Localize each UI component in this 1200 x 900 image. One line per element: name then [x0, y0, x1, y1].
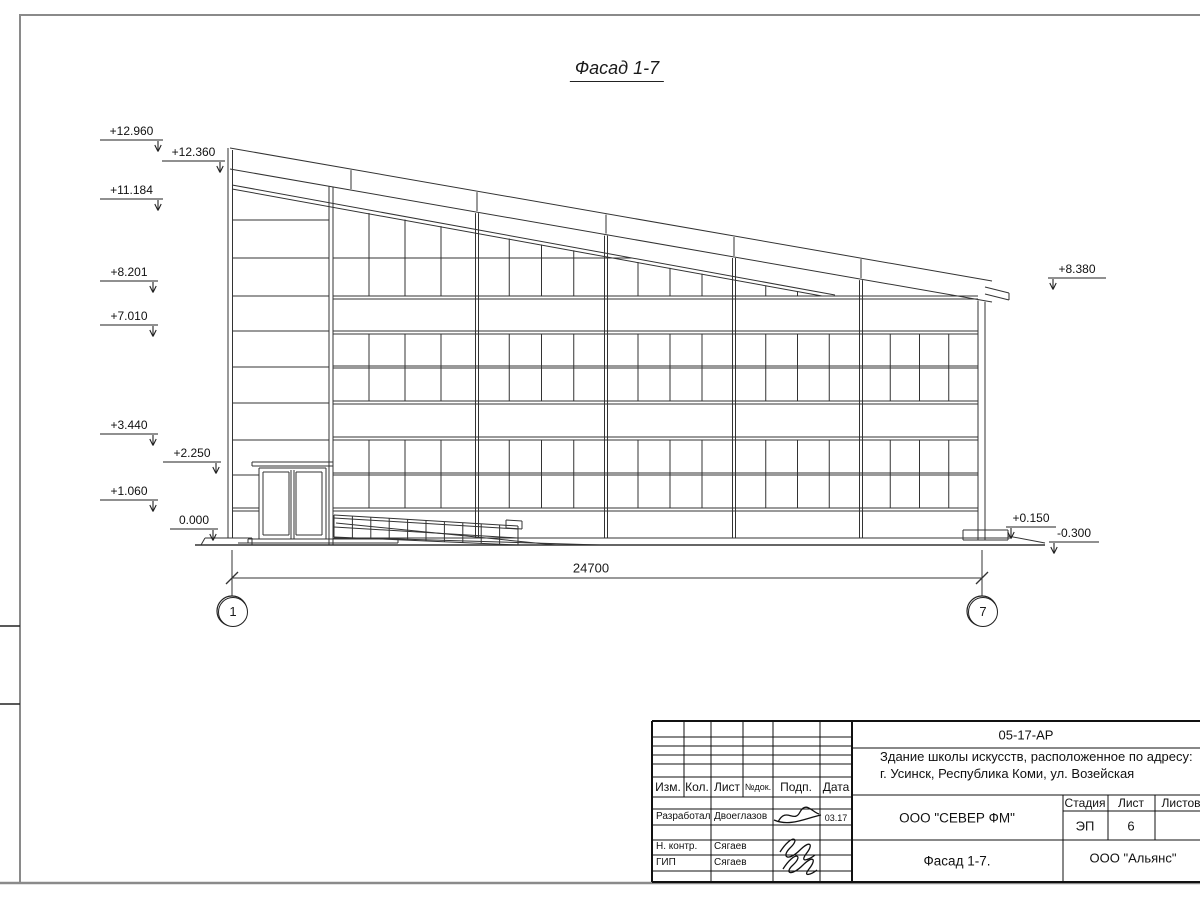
- tb-sheets-label: Листов: [1162, 796, 1200, 810]
- elevation-mark-label: +8.380: [1058, 262, 1095, 276]
- tb-col-sign: Подп.: [780, 780, 812, 794]
- elevation-mark-label: +12.360: [172, 145, 216, 159]
- elevation-mark-label: +3.440: [110, 418, 147, 432]
- tb-project-line1: Здание школы искусств, расположенное по …: [880, 749, 1193, 764]
- elevation-mark-label: +7.010: [110, 309, 147, 323]
- dimension-total-label: 24700: [573, 561, 609, 576]
- elevation-mark-label: -0.300: [1057, 526, 1091, 540]
- tb-date-razrabotal: 03.17: [825, 813, 848, 823]
- signature-scribbles: [774, 807, 821, 874]
- tb-name-dvoeglazov: Двоеглазов: [714, 811, 767, 822]
- tb-project-line2: г. Усинск, Республика Коми, ул. Возейска…: [880, 766, 1134, 781]
- tb-col-date: Дата: [823, 780, 850, 794]
- elevation-mark-label: +11.184: [110, 183, 153, 197]
- tb-col-izm: Изм.: [655, 780, 681, 794]
- tb-name-gip: Сягаев: [714, 857, 747, 868]
- tb-role-gip: ГИП: [656, 857, 676, 868]
- axis-bubble-1: 1: [218, 597, 248, 627]
- tb-stage-label: Стадия: [1065, 796, 1106, 810]
- tb-name-nkontr: Сягаев: [714, 841, 747, 852]
- signature-gip: [783, 856, 817, 874]
- tb-col-kol: Кол.: [685, 780, 709, 794]
- elevation-mark-label: +1.060: [110, 484, 147, 498]
- tb-col-doc: №док.: [745, 782, 771, 792]
- tb-sheet-label: Лист: [1118, 796, 1144, 810]
- elevation-mark-label: +8.201: [110, 265, 147, 279]
- tb-sheet-name: Фасад 1-7.: [924, 854, 991, 869]
- elevation-mark-label: +2.250: [173, 446, 210, 460]
- tb-client-company: ООО "Альянс": [1090, 851, 1177, 866]
- elevation-mark-label: +12.960: [110, 124, 154, 138]
- tb-role-nkontr: Н. контр.: [656, 841, 697, 852]
- drawing-sheet: Фасад 1-7 24700 1 7 Изм. Кол. Лист №док.…: [0, 0, 1200, 900]
- tb-document-code: 05-17-АР: [999, 728, 1054, 743]
- axis-bubble-7: 7: [968, 597, 998, 627]
- elevation-mark-label: +0.150: [1012, 511, 1049, 525]
- tb-sheet-value: 6: [1127, 819, 1134, 834]
- elevation-mark-label: 0.000: [179, 513, 209, 527]
- tb-role-razrabotal: Разработал: [656, 811, 710, 822]
- drawing-title: Фасад 1-7: [570, 58, 664, 82]
- tb-col-list: Лист: [714, 780, 740, 794]
- tb-stage-value: ЭП: [1076, 819, 1095, 834]
- tb-designer-company: ООО "СЕВЕР ФМ": [899, 811, 1015, 826]
